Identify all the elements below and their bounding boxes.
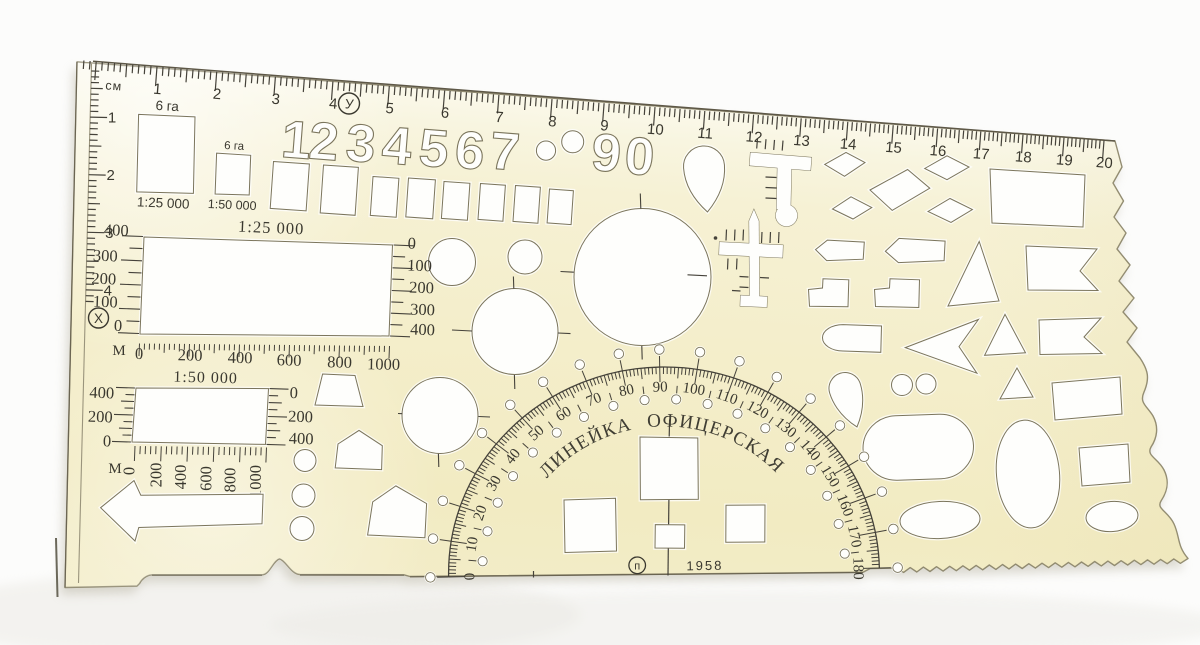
svg-text:400: 400 — [104, 220, 129, 240]
svg-text:2: 2 — [307, 111, 341, 172]
svg-text:7: 7 — [488, 121, 522, 182]
svg-text:0: 0 — [623, 126, 657, 187]
svg-text:200: 200 — [178, 345, 203, 364]
svg-text:19: 19 — [1055, 151, 1073, 169]
svg-text:1:25 000: 1:25 000 — [137, 194, 190, 211]
svg-text:14: 14 — [839, 135, 857, 153]
svg-text:2: 2 — [212, 86, 222, 104]
svg-text:0: 0 — [120, 467, 139, 475]
svg-text:4: 4 — [380, 116, 415, 177]
svg-text:6 га: 6 га — [224, 140, 245, 153]
svg-text:400: 400 — [228, 348, 253, 367]
svg-text:У: У — [345, 96, 355, 112]
svg-text:20: 20 — [1095, 154, 1113, 172]
svg-text:600: 600 — [277, 350, 302, 369]
svg-text:400: 400 — [89, 383, 114, 403]
svg-text:6: 6 — [453, 120, 487, 181]
svg-text:см: см — [105, 78, 123, 93]
svg-text:3: 3 — [344, 113, 378, 174]
svg-text:200: 200 — [409, 278, 434, 298]
svg-text:6 га: 6 га — [155, 98, 180, 114]
svg-text:400: 400 — [410, 320, 435, 340]
svg-text:12: 12 — [745, 128, 763, 146]
svg-text:2: 2 — [107, 167, 115, 184]
svg-text:1:50 000: 1:50 000 — [173, 369, 238, 388]
svg-text:15: 15 — [885, 139, 903, 157]
svg-text:0: 0 — [407, 234, 416, 253]
svg-text:800: 800 — [221, 468, 240, 493]
svg-text:п: п — [634, 560, 640, 572]
svg-text:1:50 000: 1:50 000 — [208, 197, 257, 213]
svg-text:100: 100 — [93, 292, 118, 312]
svg-text:400: 400 — [171, 465, 190, 490]
svg-text:Х: Х — [94, 311, 103, 326]
svg-text:200: 200 — [88, 407, 113, 427]
svg-text:0: 0 — [135, 344, 144, 363]
svg-text:1958: 1958 — [686, 558, 723, 574]
svg-text:600: 600 — [197, 466, 216, 491]
svg-text:180: 180 — [849, 557, 865, 580]
svg-text:10: 10 — [464, 536, 482, 553]
svg-text:5: 5 — [417, 118, 451, 179]
svg-text:11: 11 — [697, 125, 714, 143]
svg-text:80: 80 — [618, 382, 636, 401]
svg-text:1: 1 — [108, 110, 116, 127]
svg-text:200: 200 — [288, 407, 313, 427]
svg-text:0: 0 — [103, 431, 112, 450]
svg-text:0: 0 — [114, 316, 123, 335]
svg-text:9: 9 — [589, 123, 623, 184]
svg-text:М: М — [112, 343, 125, 359]
svg-text:300: 300 — [93, 246, 118, 266]
svg-text:800: 800 — [327, 352, 352, 371]
svg-text:1000: 1000 — [367, 354, 400, 374]
svg-text:0: 0 — [289, 383, 298, 402]
svg-text:1:25 000: 1:25 000 — [238, 217, 305, 239]
svg-text:100: 100 — [407, 256, 432, 276]
svg-text:4: 4 — [328, 95, 338, 113]
svg-text:200: 200 — [91, 269, 116, 289]
svg-text:400: 400 — [288, 429, 313, 449]
svg-text:0: 0 — [462, 573, 478, 581]
svg-text:13: 13 — [793, 132, 811, 150]
svg-text:18: 18 — [1014, 148, 1032, 166]
svg-text:1: 1 — [153, 81, 163, 99]
svg-text:90: 90 — [652, 379, 667, 395]
svg-text:8: 8 — [548, 113, 558, 131]
svg-text:17: 17 — [972, 145, 990, 163]
svg-text:5: 5 — [385, 100, 395, 118]
svg-text:200: 200 — [147, 463, 166, 488]
svg-text:300: 300 — [410, 300, 435, 320]
svg-text:3: 3 — [271, 91, 281, 109]
svg-text:100: 100 — [681, 380, 706, 399]
